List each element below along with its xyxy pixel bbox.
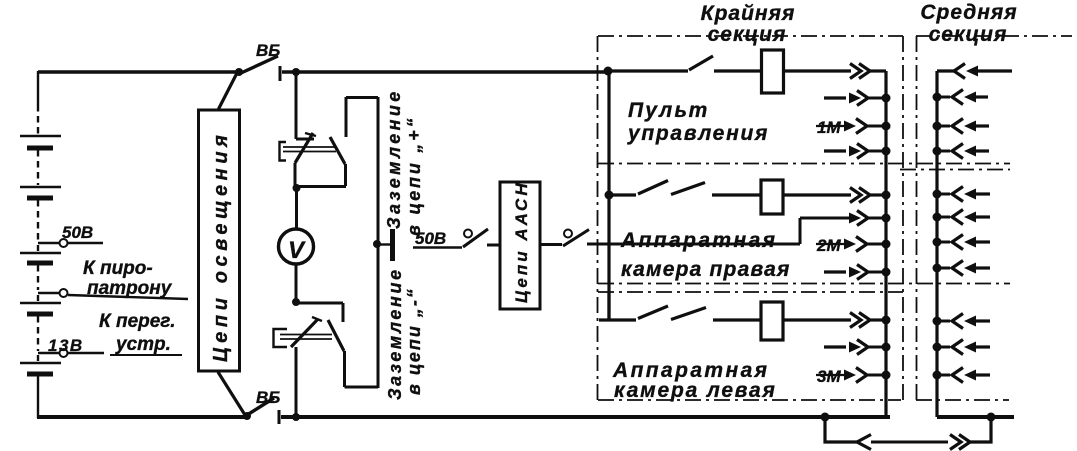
svg-text:в цепи „+“: в цепи „+“	[404, 116, 424, 236]
svg-text:3М: 3М	[817, 367, 841, 386]
svg-text:секция: секция	[708, 23, 787, 46]
svg-text:в цепи „-“: в цепи „-“	[404, 287, 424, 395]
svg-text:Пульт: Пульт	[628, 99, 709, 122]
svg-text:управления: управления	[627, 122, 769, 145]
svg-text:Аппаратная: Аппаратная	[620, 229, 777, 252]
svg-text:Заземление: Заземление	[384, 88, 404, 229]
svg-text:2М: 2М	[816, 236, 841, 255]
svg-text:V: V	[288, 237, 306, 264]
svg-text:50В: 50В	[62, 223, 93, 242]
svg-text:ВБ: ВБ	[256, 41, 280, 60]
svg-text:1М: 1М	[817, 118, 841, 137]
svg-text:Крайняя: Крайняя	[701, 2, 796, 25]
svg-text:Средняя: Средняя	[920, 1, 1017, 24]
svg-text:13В: 13В	[48, 336, 84, 355]
svg-text:камера левая: камера левая	[614, 379, 777, 402]
svg-text:К перег.: К перег.	[99, 311, 175, 332]
svg-text:Цепи ААСН: Цепи ААСН	[512, 180, 531, 303]
svg-text:Заземление: Заземление	[385, 267, 405, 400]
svg-text:ВБ: ВБ	[256, 388, 280, 407]
svg-text:К пиро-: К пиро-	[83, 258, 153, 279]
svg-text:Цепи освещения: Цепи освещения	[210, 130, 232, 362]
svg-text:патрону: патрону	[87, 278, 173, 299]
svg-text:камера правая: камера правая	[621, 258, 791, 281]
svg-text:секция: секция	[929, 23, 1008, 46]
svg-text:устр.: устр.	[115, 334, 171, 355]
svg-text:50В: 50В	[415, 229, 446, 248]
